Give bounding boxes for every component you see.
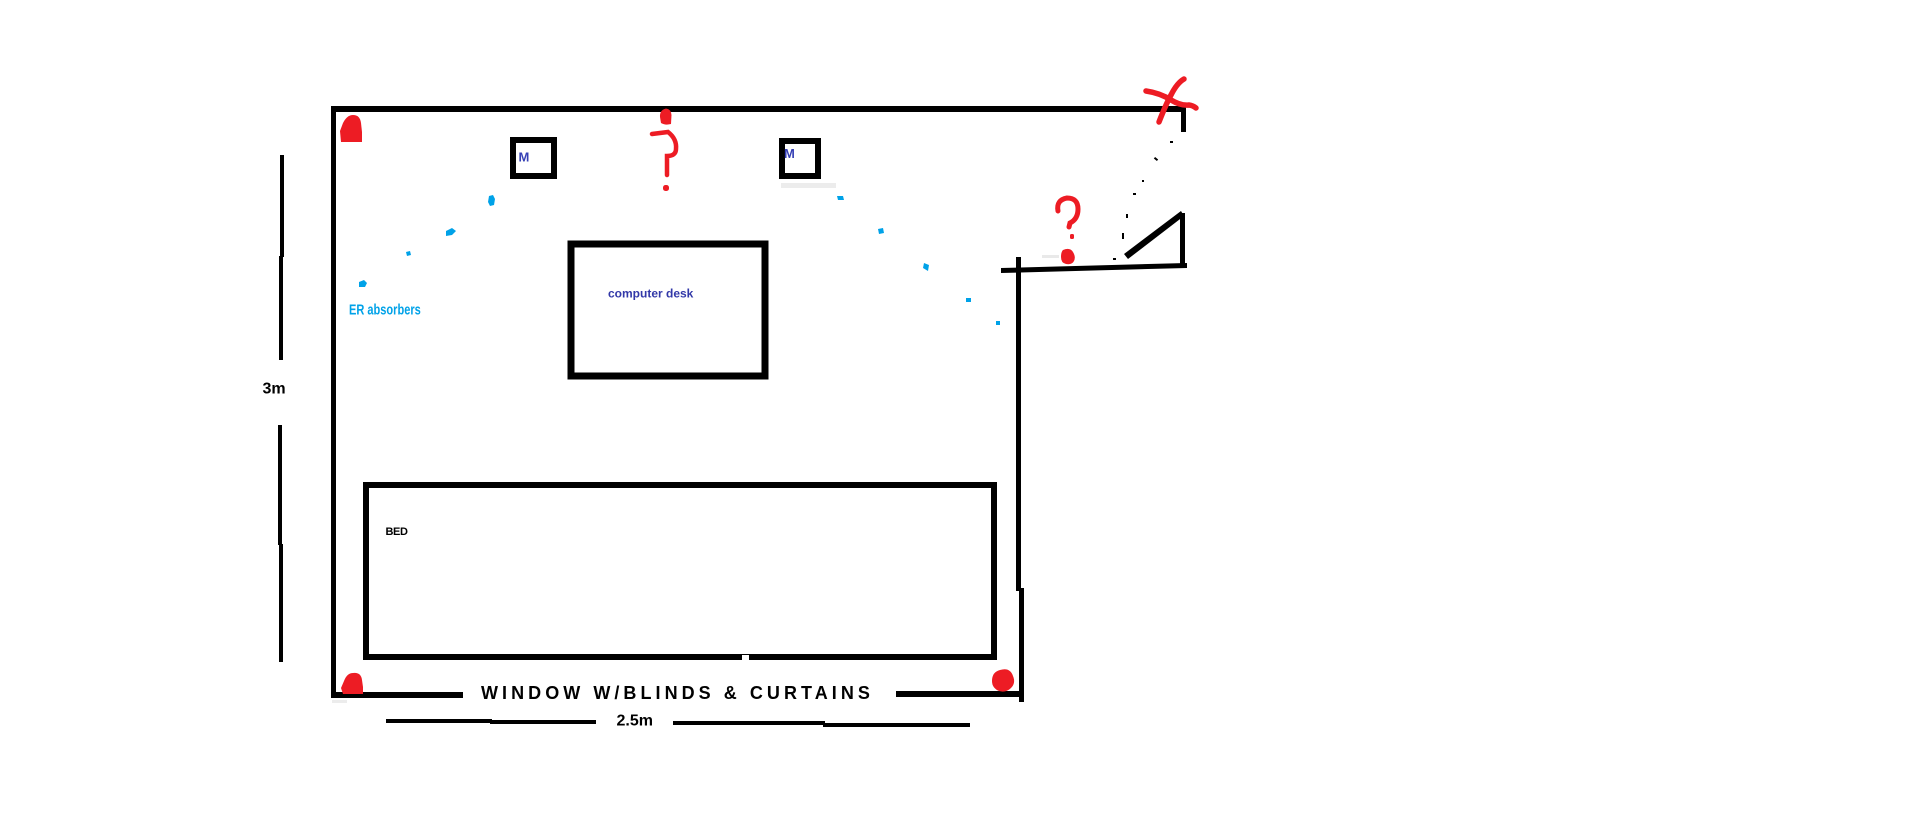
svg-text:2.5m: 2.5m bbox=[617, 713, 653, 730]
svg-text:ER absorbers: ER absorbers bbox=[349, 301, 421, 318]
svg-text:BED: BED bbox=[386, 526, 408, 538]
svg-text:M: M bbox=[784, 146, 795, 161]
svg-text:3m: 3m bbox=[263, 381, 286, 398]
svg-text:WINDOW W/BLINDS & CURTAINS: WINDOW W/BLINDS & CURTAINS bbox=[481, 683, 874, 703]
svg-text:computer desk: computer desk bbox=[608, 287, 694, 301]
svg-text:M: M bbox=[519, 150, 530, 165]
